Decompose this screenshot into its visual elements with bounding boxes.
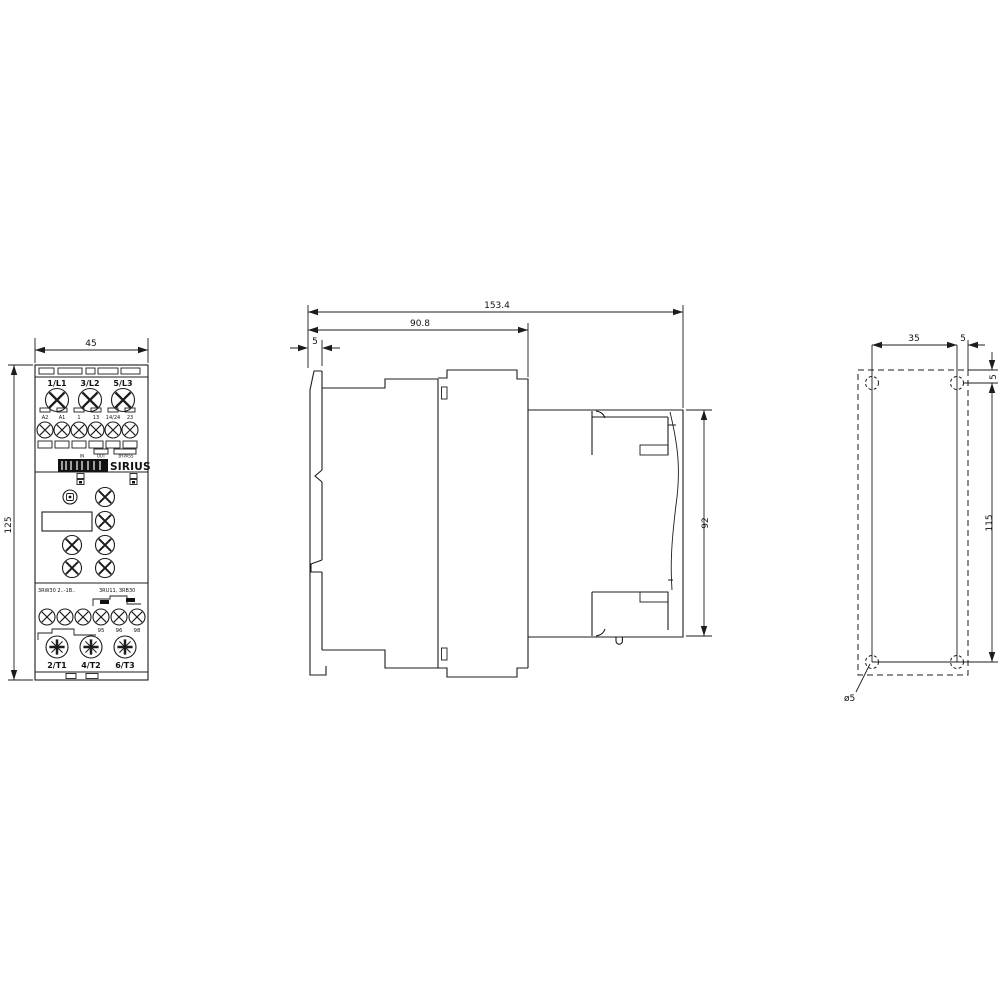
potentiometer-1 [96, 488, 115, 507]
ctrl-screw-13 [88, 422, 104, 438]
terminal-label-6t3: 6/T3 [115, 661, 135, 670]
side-body-depth-dimension: 90.8 [308, 319, 528, 377]
aux-screw-98 [129, 609, 145, 625]
aux-label-96: 96 [116, 628, 123, 634]
aux-label-98: 98 [134, 628, 141, 634]
dim-total-depth-label: 153.4 [484, 301, 510, 311]
terminal-label-2t1: 2/T1 [47, 661, 67, 670]
terminal-label-5l3: 5/L3 [113, 379, 132, 388]
hole-diameter-label: ø5 [844, 694, 855, 704]
ctrl-screw-23 [122, 422, 138, 438]
ctrl-label-13: 13 [93, 415, 99, 421]
rear-view: 35 5 5 115 ø5 [844, 334, 999, 704]
aux-label-95: 95 [98, 628, 105, 634]
terminal-label-4t2: 4/T2 [81, 661, 101, 670]
status-led [63, 490, 77, 504]
marking-strip: IN OUT BYPASS [80, 449, 136, 459]
ctrl-screw-a1 [54, 422, 70, 438]
potentiometer-4 [96, 536, 115, 555]
front-view: 45 125 1/L1 3/L2 5/L3 [4, 338, 151, 680]
side-tab-dimension: 5 [290, 337, 340, 366]
technical-drawing: 45 125 1/L1 3/L2 5/L3 [0, 0, 1000, 1000]
side-terminal-section [528, 410, 683, 644]
side-body-profile [322, 370, 528, 677]
front-width-dimension: 45 [35, 338, 148, 363]
dim-hole-spacing-v-label: 115 [985, 514, 995, 531]
dimension-drawing-page: 45 125 1/L1 3/L2 5/L3 [0, 0, 1000, 1000]
ctrl-label-1: 1 [77, 415, 80, 421]
potentiometer-5 [63, 559, 82, 578]
ctrl-label-a1: A1 [59, 415, 66, 421]
hole-center-lines [872, 345, 957, 662]
side-total-depth-dimension: 153.4 [308, 301, 683, 408]
aux-screw-1 [39, 609, 55, 625]
terminal-6t3-screw [114, 636, 136, 658]
aux-screw-3 [75, 609, 91, 625]
marking-steps [93, 596, 141, 606]
side-type-text: 3RU11, 3RB30 [99, 588, 135, 594]
bottom-slots [66, 674, 98, 679]
rear-hole-spacing-dimension: 35 5 [872, 334, 985, 370]
dim-tab-label: 5 [312, 337, 318, 347]
type-text: 3RW30 2..-1B.. [38, 588, 76, 594]
dim-height-label: 125 [4, 516, 14, 533]
din-rail-tab [310, 371, 326, 675]
terminal-2t1-screw [46, 636, 68, 658]
ctrl-screw-a2 [37, 422, 53, 438]
marking-in: IN [80, 454, 84, 459]
dim-width-label: 45 [85, 339, 96, 349]
dim-hole-edge-v-label: 5 [989, 374, 999, 380]
terminal-4t2-screw [80, 636, 102, 658]
aux-screw-2 [57, 609, 73, 625]
dim-body-depth-label: 90.8 [410, 319, 430, 329]
marking-bypass: BYPASS [119, 454, 134, 459]
side-view: 153.4 90.8 5 92 [290, 301, 712, 677]
front-height-dimension: 125 [4, 365, 33, 680]
ctrl-screw-14-24 [105, 422, 121, 438]
brand-label: SIRIUS [110, 461, 151, 473]
footprint-outline [858, 370, 968, 675]
ctrl-label-a2: A2 [42, 415, 49, 421]
type-plate-barcode [58, 459, 108, 472]
ctrl-label-14-24: 14/24 [106, 415, 120, 421]
marking-out: OUT [97, 454, 106, 459]
display-window [42, 512, 92, 531]
top-vent-slots [39, 368, 140, 374]
dim-terminal-height-label: 92 [701, 517, 711, 528]
ctrl-screw-1 [71, 422, 87, 438]
clip-spring-curve [670, 412, 678, 590]
latch-squares [77, 474, 137, 485]
mounting-hook [616, 637, 622, 644]
control-terminal-openings [38, 441, 137, 448]
dim-hole-edge-h-label: 5 [960, 334, 966, 344]
terminal-cover-step [38, 629, 96, 640]
potentiometer-2 [96, 512, 115, 531]
hole-diameter-callout: ø5 [844, 664, 870, 704]
ctrl-label-23: 23 [127, 415, 133, 421]
aux-screw-95 [93, 609, 109, 625]
aux-screw-96 [111, 609, 127, 625]
side-terminal-height-dimension: 92 [686, 410, 712, 636]
rear-vertical-dimensions: 5 115 [872, 352, 999, 662]
terminal-label-3l2: 3/L2 [80, 379, 99, 388]
terminal-label-1l1: 1/L1 [47, 379, 67, 388]
potentiometer-3 [63, 536, 82, 555]
dim-hole-spacing-h-label: 35 [908, 334, 919, 344]
potentiometer-6 [96, 559, 115, 578]
